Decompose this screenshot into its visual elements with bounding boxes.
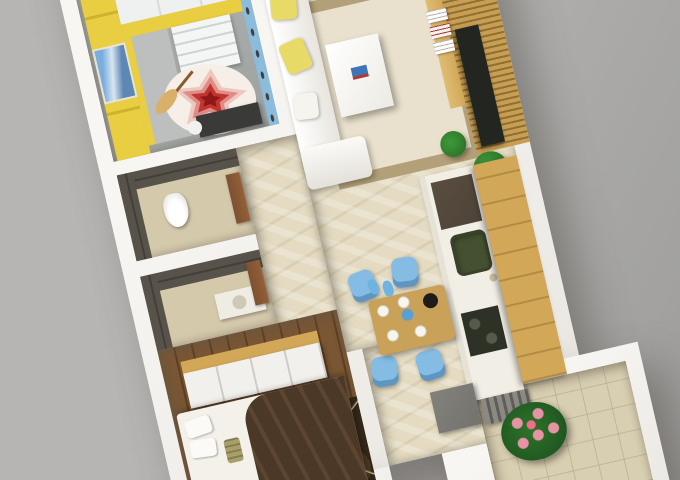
sofa-pillow-white <box>293 92 320 121</box>
apartment-plan <box>0 0 680 480</box>
scene-background <box>0 0 680 480</box>
plate <box>398 296 410 308</box>
plate <box>415 325 427 337</box>
blue-bowl <box>400 308 414 322</box>
dark-bowl <box>422 292 440 310</box>
sofa-pillow-yellow <box>269 0 298 21</box>
bed-pillow <box>189 437 217 458</box>
dining-chair <box>370 355 400 388</box>
dining-chair <box>390 256 419 289</box>
plate <box>377 305 389 317</box>
vanity-basin <box>231 294 248 311</box>
plate <box>387 330 399 342</box>
